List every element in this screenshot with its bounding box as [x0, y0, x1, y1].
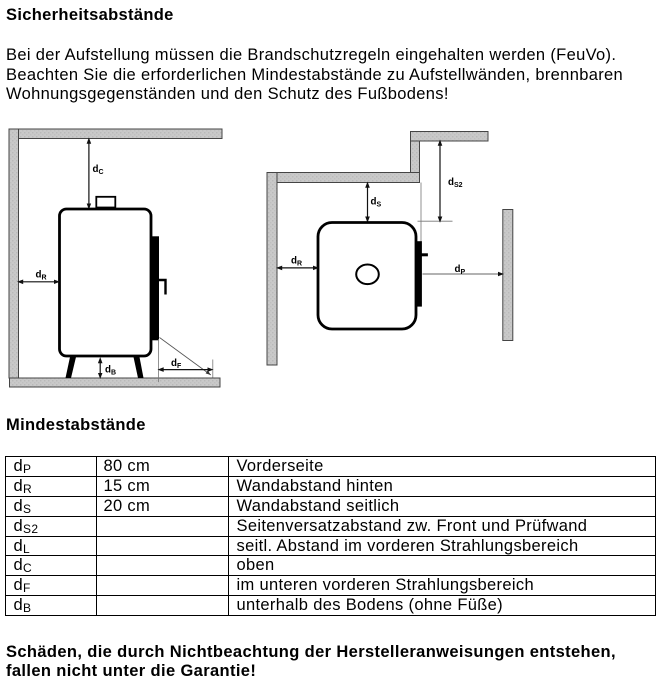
svg-text:dP: dP	[455, 264, 466, 276]
svg-text:dF: dF	[171, 358, 182, 370]
svg-text:dC: dC	[93, 164, 104, 176]
svg-text:dB: dB	[105, 365, 116, 377]
svg-text:dS: dS	[371, 197, 382, 209]
svg-text:dR: dR	[36, 270, 47, 282]
svg-text:dS2: dS2	[448, 177, 463, 189]
svg-text:dR: dR	[291, 256, 302, 268]
